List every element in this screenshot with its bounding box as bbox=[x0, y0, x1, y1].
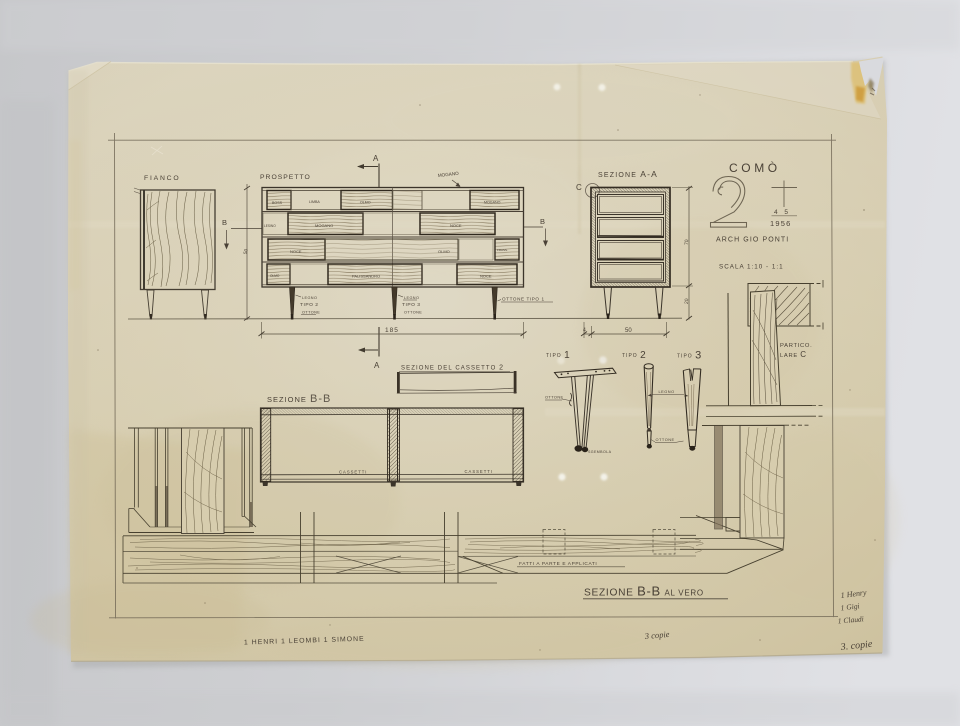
svg-text:C: C bbox=[576, 183, 582, 192]
svg-text:ARCH GIO PONTI: ARCH GIO PONTI bbox=[716, 237, 789, 244]
svg-text:NOCE: NOCE bbox=[450, 223, 462, 228]
svg-text:LEGNO: LEGNO bbox=[302, 296, 317, 300]
svg-text:50: 50 bbox=[625, 328, 632, 334]
svg-text:MOGANO: MOGANO bbox=[484, 201, 501, 205]
svg-text:COMÒ: COMÒ bbox=[729, 160, 781, 175]
svg-text:PARTICO.: PARTICO. bbox=[780, 343, 812, 349]
svg-text:SCALA 1:10 - 1:1: SCALA 1:10 - 1:1 bbox=[719, 264, 784, 271]
svg-text:BOSS: BOSS bbox=[272, 201, 283, 205]
svg-text:SEZIONE B-B: SEZIONE B-B bbox=[267, 393, 331, 405]
svg-text:OLMO: OLMO bbox=[270, 274, 280, 278]
svg-text:FRASS.: FRASS. bbox=[497, 248, 508, 252]
svg-text:SGEMBOLA: SGEMBOLA bbox=[588, 450, 612, 454]
svg-text:A: A bbox=[374, 361, 380, 370]
svg-text:NOCE: NOCE bbox=[480, 274, 492, 279]
svg-text:FATTI A PARTE E APPLICATI: FATTI A PARTE E APPLICATI bbox=[519, 561, 597, 567]
svg-text:PALISSANDRO: PALISSANDRO bbox=[352, 274, 380, 279]
svg-text:4 5: 4 5 bbox=[774, 209, 791, 216]
svg-text:OTTONE: OTTONE bbox=[302, 311, 320, 315]
svg-text:TIPO 2: TIPO 2 bbox=[300, 302, 319, 308]
svg-text:OLMO: OLMO bbox=[360, 201, 371, 205]
svg-text:OTTONE: OTTONE bbox=[545, 395, 564, 400]
svg-text:4: 4 bbox=[583, 328, 586, 334]
svg-text:B: B bbox=[222, 218, 227, 227]
svg-text:FIANCO: FIANCO bbox=[144, 175, 180, 182]
svg-text:B: B bbox=[540, 217, 545, 226]
svg-text:CASSETTI: CASSETTI bbox=[465, 469, 493, 474]
svg-text:OTTONE: OTTONE bbox=[656, 437, 675, 442]
svg-text:TIPO 3: TIPO 3 bbox=[402, 302, 421, 308]
svg-text:LEGNO: LEGNO bbox=[404, 296, 419, 300]
svg-text:OLMO: OLMO bbox=[438, 249, 450, 254]
svg-text:CASSETTI: CASSETTI bbox=[339, 470, 367, 475]
svg-text:OTTONE TIPO 1: OTTONE TIPO 1 bbox=[502, 297, 545, 302]
svg-text:MOGANO: MOGANO bbox=[315, 223, 333, 228]
svg-text:PROSPETTO: PROSPETTO bbox=[260, 174, 311, 181]
svg-text:1956: 1956 bbox=[770, 219, 792, 228]
svg-text:NOCE: NOCE bbox=[290, 249, 302, 254]
svg-text:20: 20 bbox=[684, 298, 690, 304]
svg-text:SEZIONE DEL CASSETTO 2: SEZIONE DEL CASSETTO 2 bbox=[401, 365, 504, 372]
svg-text:LIMBA: LIMBA bbox=[309, 200, 320, 204]
svg-text:A: A bbox=[373, 154, 379, 163]
svg-text:OTTONE: OTTONE bbox=[404, 311, 422, 315]
svg-text:LESINO: LESINO bbox=[264, 224, 276, 228]
svg-text:LEGNO: LEGNO bbox=[659, 389, 675, 394]
svg-text:185: 185 bbox=[385, 327, 399, 334]
svg-text:70: 70 bbox=[684, 239, 690, 245]
